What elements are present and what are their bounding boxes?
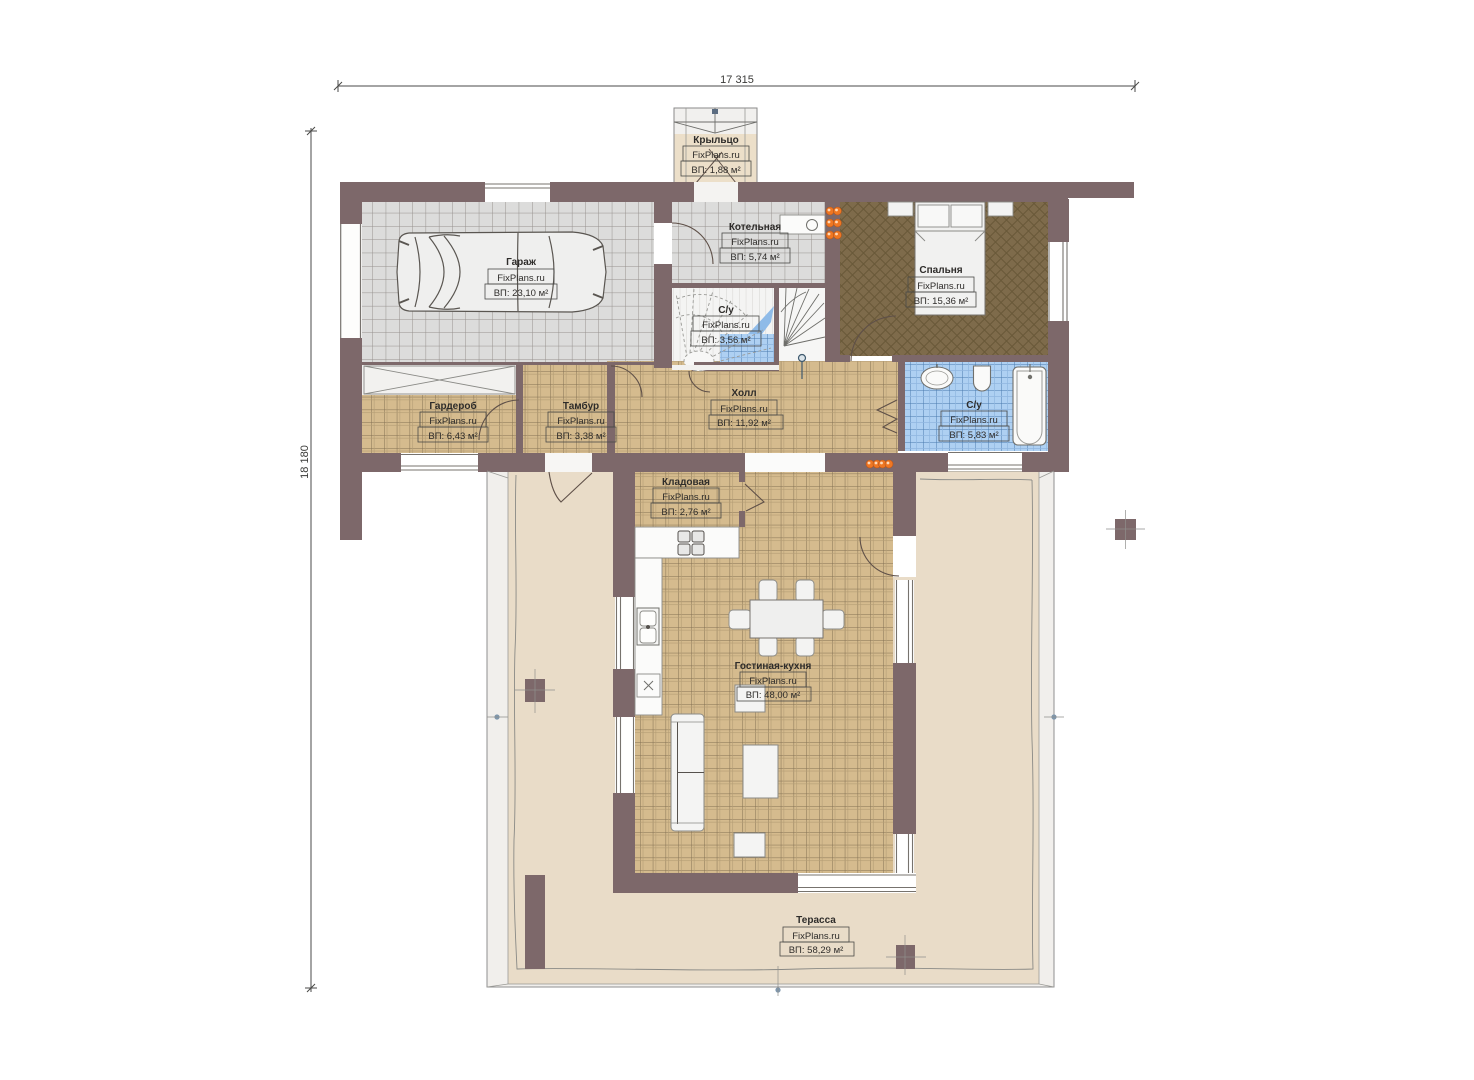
svg-text:С/у: С/у <box>718 305 734 316</box>
svg-text:Холл: Холл <box>731 388 756 399</box>
svg-text:Гардероб: Гардероб <box>429 400 476 412</box>
svg-text:С/у: С/у <box>966 400 982 411</box>
svg-text:ВП: 11,92 м²: ВП: 11,92 м² <box>717 418 771 429</box>
svg-text:ВП: 15,36 м²: ВП: 15,36 м² <box>914 296 969 307</box>
svg-text:FixPlans.ru: FixPlans.ru <box>662 492 710 503</box>
svg-text:FixPlans.ru: FixPlans.ru <box>731 237 779 248</box>
svg-text:FixPlans.ru: FixPlans.ru <box>702 320 750 331</box>
svg-text:FixPlans.ru: FixPlans.ru <box>429 416 477 427</box>
svg-text:FixPlans.ru: FixPlans.ru <box>917 281 965 292</box>
svg-text:ВП: 48,00 м²: ВП: 48,00 м² <box>746 690 801 701</box>
svg-text:ВП: 5,83 м²: ВП: 5,83 м² <box>949 430 998 441</box>
svg-text:FixPlans.ru: FixPlans.ru <box>497 273 545 284</box>
svg-text:ВП: 2,76 м²: ВП: 2,76 м² <box>661 507 710 518</box>
svg-text:Спальня: Спальня <box>919 265 962 276</box>
svg-text:17 315: 17 315 <box>720 74 754 86</box>
svg-text:FixPlans.ru: FixPlans.ru <box>749 676 797 687</box>
svg-text:ВП: 58,29 м²: ВП: 58,29 м² <box>789 945 844 956</box>
svg-text:ВП: 6,43 м²: ВП: 6,43 м² <box>428 431 477 442</box>
svg-text:Котельная: Котельная <box>729 222 782 233</box>
svg-text:FixPlans.ru: FixPlans.ru <box>720 404 768 415</box>
svg-text:Терасса: Терасса <box>796 915 836 926</box>
svg-text:ВП: 3,56 м²: ВП: 3,56 м² <box>701 335 750 346</box>
svg-text:Крыльцо: Крыльцо <box>693 135 739 146</box>
svg-text:FixPlans.ru: FixPlans.ru <box>557 416 605 427</box>
svg-text:Гостиная-кухня: Гостиная-кухня <box>735 661 812 672</box>
svg-text:FixPlans.ru: FixPlans.ru <box>792 931 840 942</box>
svg-text:FixPlans.ru: FixPlans.ru <box>692 150 740 161</box>
svg-text:18 180: 18 180 <box>299 445 311 479</box>
svg-text:Кладовая: Кладовая <box>662 477 710 488</box>
svg-text:Гараж: Гараж <box>506 257 537 268</box>
svg-text:ВП: 5,74 м²: ВП: 5,74 м² <box>730 252 779 263</box>
svg-text:ВП: 1,88 м²: ВП: 1,88 м² <box>691 165 740 176</box>
svg-text:FixPlans.ru: FixPlans.ru <box>950 415 998 426</box>
svg-text:ВП: 3,38 м²: ВП: 3,38 м² <box>556 431 605 442</box>
svg-text:ВП: 23,10 м²: ВП: 23,10 м² <box>494 288 549 299</box>
svg-text:Тамбур: Тамбур <box>563 400 599 412</box>
